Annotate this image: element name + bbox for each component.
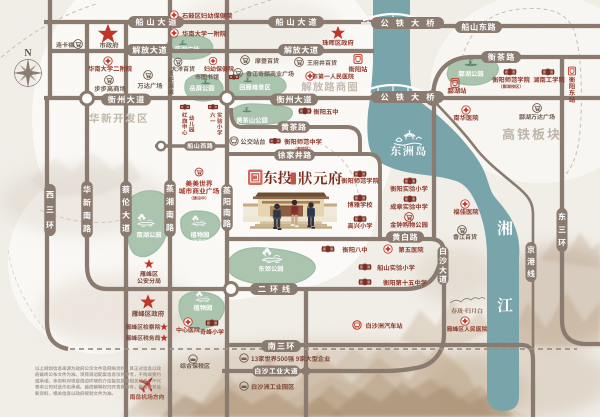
- svg-text:湘: 湘: [497, 216, 513, 239]
- svg-text:春珑·归月白: 春珑·归月白: [451, 306, 483, 315]
- svg-text:雁峰区检察院: 雁峰区检察院: [126, 322, 161, 331]
- svg-text:汽配湘城: 汽配湘城: [168, 69, 174, 96]
- svg-text:金钟购物公园: 金钟购物公园: [390, 220, 428, 229]
- svg-text:衡阳实验小学: 衡阳实验小学: [390, 184, 428, 193]
- svg-text:船山东路: 船山东路: [461, 21, 496, 33]
- svg-text:成章实验中学: 成章实验中学: [390, 202, 428, 211]
- svg-text:船山实验小学: 船山实验小学: [377, 263, 415, 272]
- svg-text:新资料，相关信息以政府规划文件为准。: 新资料，相关信息以政府规划文件为准。: [35, 391, 116, 397]
- svg-text:公安分局: 公安分局: [137, 276, 161, 285]
- svg-text:白沙工业大道: 白沙工业大道: [254, 365, 298, 375]
- svg-text:13家世界500强 9家大型企业: 13家世界500强 9家大型企业: [251, 354, 330, 363]
- svg-text:蒸阳南路: 蒸阳南路: [223, 185, 232, 230]
- svg-text:船山西路: 船山西路: [187, 141, 213, 150]
- svg-text:白沙洲工业园区: 白沙洲工业园区: [251, 382, 294, 391]
- svg-text:幼儿园: 幼儿园: [189, 114, 195, 134]
- svg-text:东洲岛: 东洲岛: [390, 143, 428, 159]
- svg-text:回雁峰景区: 回雁峰景区: [239, 83, 271, 92]
- svg-text:衡阳师范学院: 衡阳师范学院: [492, 75, 530, 84]
- svg-text:奇峰小学: 奇峰小学: [200, 327, 224, 336]
- svg-text:船山大道: 船山大道: [275, 16, 319, 28]
- svg-text:香江岢麟商业广场: 香江岢麟商业广场: [246, 69, 294, 78]
- svg-text:第五医院: 第五医院: [398, 245, 424, 254]
- svg-text:步步高商场: 步步高商场: [94, 84, 126, 93]
- svg-text:雁峰区税务局: 雁峰区税务局: [126, 333, 161, 342]
- svg-text:市图书馆: 市图书馆: [195, 72, 219, 81]
- svg-text:府最终公布文件为准。项目周边配套信息仅供参考，不构成要约: 府最终公布文件为准。项目周边配套信息仅供参考，不构成要约: [35, 372, 161, 378]
- svg-text:雁峰区人民医院: 雁峰区人民医院: [447, 324, 488, 333]
- svg-text:黄白路: 黄白路: [392, 232, 418, 243]
- svg-text:南岳机场方向: 南岳机场方向: [130, 392, 165, 401]
- svg-text:（酃湖校区）: （酃湖校区）: [498, 84, 523, 90]
- svg-text:衡阳八中: 衡阳八中: [342, 245, 367, 254]
- svg-text:雁峰区政府: 雁峰区政府: [132, 308, 165, 318]
- svg-text:西三环: 西三环: [46, 189, 54, 231]
- svg-text:酃湖公园: 酃湖公园: [458, 69, 483, 78]
- svg-text:南三环: 南三环: [268, 340, 296, 352]
- svg-text:衡州大道: 衡州大道: [108, 93, 146, 105]
- svg-text:蔡伦大道: 蔡伦大道: [122, 183, 131, 233]
- svg-text:蒸湘南路: 蒸湘南路: [166, 183, 175, 234]
- svg-text:香江百货: 香江百货: [453, 232, 477, 241]
- svg-text:或承诺。本资料对项目周边环境的介绍旨在提供相关信息，不代: 或承诺。本资料对项目周边环境的介绍旨在提供相关信息，不代: [35, 378, 161, 384]
- svg-text:华南大学一附院: 华南大学一附院: [182, 29, 227, 38]
- svg-text:以上规划信息来源为政府公示文件及网络资料，其正式信息以政: 以上规划信息来源为政府公示文件及网络资料，其正式信息以政: [35, 366, 161, 372]
- svg-text:实验小学: 实验小学: [217, 111, 223, 136]
- svg-text:黄茶路: 黄茶路: [281, 122, 307, 133]
- svg-text:衡阳五中: 衡阳五中: [313, 107, 338, 116]
- svg-text:白沙洲汽车站: 白沙洲汽车站: [365, 321, 402, 330]
- svg-text:高铁板块: 高铁板块: [502, 124, 562, 143]
- svg-text:南湖公园: 南湖公园: [136, 230, 161, 239]
- svg-text:东投: 东投: [263, 167, 292, 188]
- svg-text:植物园: 植物园: [191, 230, 210, 239]
- svg-text:福佳医院: 福佳医院: [453, 207, 479, 216]
- svg-text:华新开发区: 华新开发区: [89, 111, 149, 126]
- svg-text:表本公司对此作出承诺。最终解释权归开发商所有，敬请留意最: 表本公司对此作出承诺。最终解释权归开发商所有，敬请留意最: [35, 385, 161, 391]
- svg-text:石鼓区妇幼保健院: 石鼓区妇幼保健院: [182, 11, 233, 20]
- svg-text:市政府: 市政府: [100, 41, 120, 50]
- svg-text:湖南工学院: 湖南工学院: [533, 75, 565, 84]
- svg-text:衡阳师范学院: 衡阳师范学院: [341, 176, 379, 185]
- svg-text:狀元府: 狀元府: [298, 168, 343, 189]
- svg-text:连卡福: 连卡福: [56, 40, 74, 49]
- svg-text:珠晖区政府: 珠晖区政府: [322, 38, 354, 47]
- svg-text:衡阳第十五中学: 衡阳第十五中学: [383, 278, 427, 287]
- svg-text:解放路商圈: 解放路商圈: [301, 80, 359, 95]
- svg-text:公铁大桥: 公铁大桥: [380, 91, 441, 103]
- svg-text:大洋百货: 大洋百货: [171, 64, 195, 73]
- svg-text:华南大学二附院: 华南大学二附院: [88, 64, 133, 73]
- svg-text:综合保税区: 综合保税区: [180, 361, 210, 370]
- svg-text:公交站台: 公交站台: [240, 137, 265, 146]
- svg-text:衡阳师范中学: 衡阳师范中学: [284, 137, 322, 146]
- svg-text:衡阳东站: 衡阳东站: [569, 75, 576, 104]
- svg-text:N: N: [24, 48, 32, 59]
- svg-text:岳屏公园: 岳屏公园: [189, 84, 214, 93]
- svg-text:白沙大道: 白沙大道: [439, 246, 447, 285]
- svg-text:（新园区）: （新园区）: [190, 239, 211, 245]
- svg-text:（老校区）: （老校区）: [293, 146, 313, 152]
- svg-text:城市商业广场: 城市商业广场: [179, 186, 220, 196]
- svg-text:解放大道: 解放大道: [284, 44, 319, 56]
- svg-text:南华医院: 南华医院: [453, 113, 479, 122]
- svg-text:衡阳站: 衡阳站: [349, 65, 369, 74]
- svg-text:酃湖万达广场: 酃湖万达广场: [519, 112, 555, 121]
- svg-text:公铁大桥: 公铁大桥: [380, 17, 441, 29]
- svg-text:衡州大道: 衡州大道: [276, 93, 312, 105]
- svg-text:解放大道: 解放大道: [132, 44, 167, 56]
- svg-text:红旗中心: 红旗中心: [182, 111, 188, 136]
- svg-text:东三环: 东三环: [558, 212, 566, 249]
- svg-text:衡茶路: 衡茶路: [488, 51, 516, 63]
- svg-text:植物园: 植物园: [194, 303, 213, 312]
- svg-text:中心医院: 中心医院: [176, 325, 200, 334]
- svg-text:黄茶山公园: 黄茶山公园: [236, 116, 267, 125]
- svg-text:摩登百货: 摩登百货: [255, 56, 279, 65]
- svg-text:万达广场: 万达广场: [137, 81, 163, 90]
- svg-text:二环线: 二环线: [258, 283, 294, 295]
- svg-text:六一: 六一: [210, 111, 216, 125]
- svg-text:高兴小学: 高兴小学: [347, 221, 372, 230]
- svg-text:（建设中）: （建设中）: [189, 196, 209, 202]
- svg-text:王府井百货: 王府井百货: [307, 58, 337, 67]
- svg-text:博雅学校: 博雅学校: [347, 200, 373, 209]
- svg-text:东郊公园: 东郊公园: [258, 264, 283, 273]
- svg-text:京港线: 京港线: [527, 245, 535, 280]
- svg-text:江: 江: [497, 293, 513, 316]
- svg-text:华新南路: 华新南路: [83, 184, 92, 235]
- svg-text:酃湖站: 酃湖站: [448, 86, 468, 95]
